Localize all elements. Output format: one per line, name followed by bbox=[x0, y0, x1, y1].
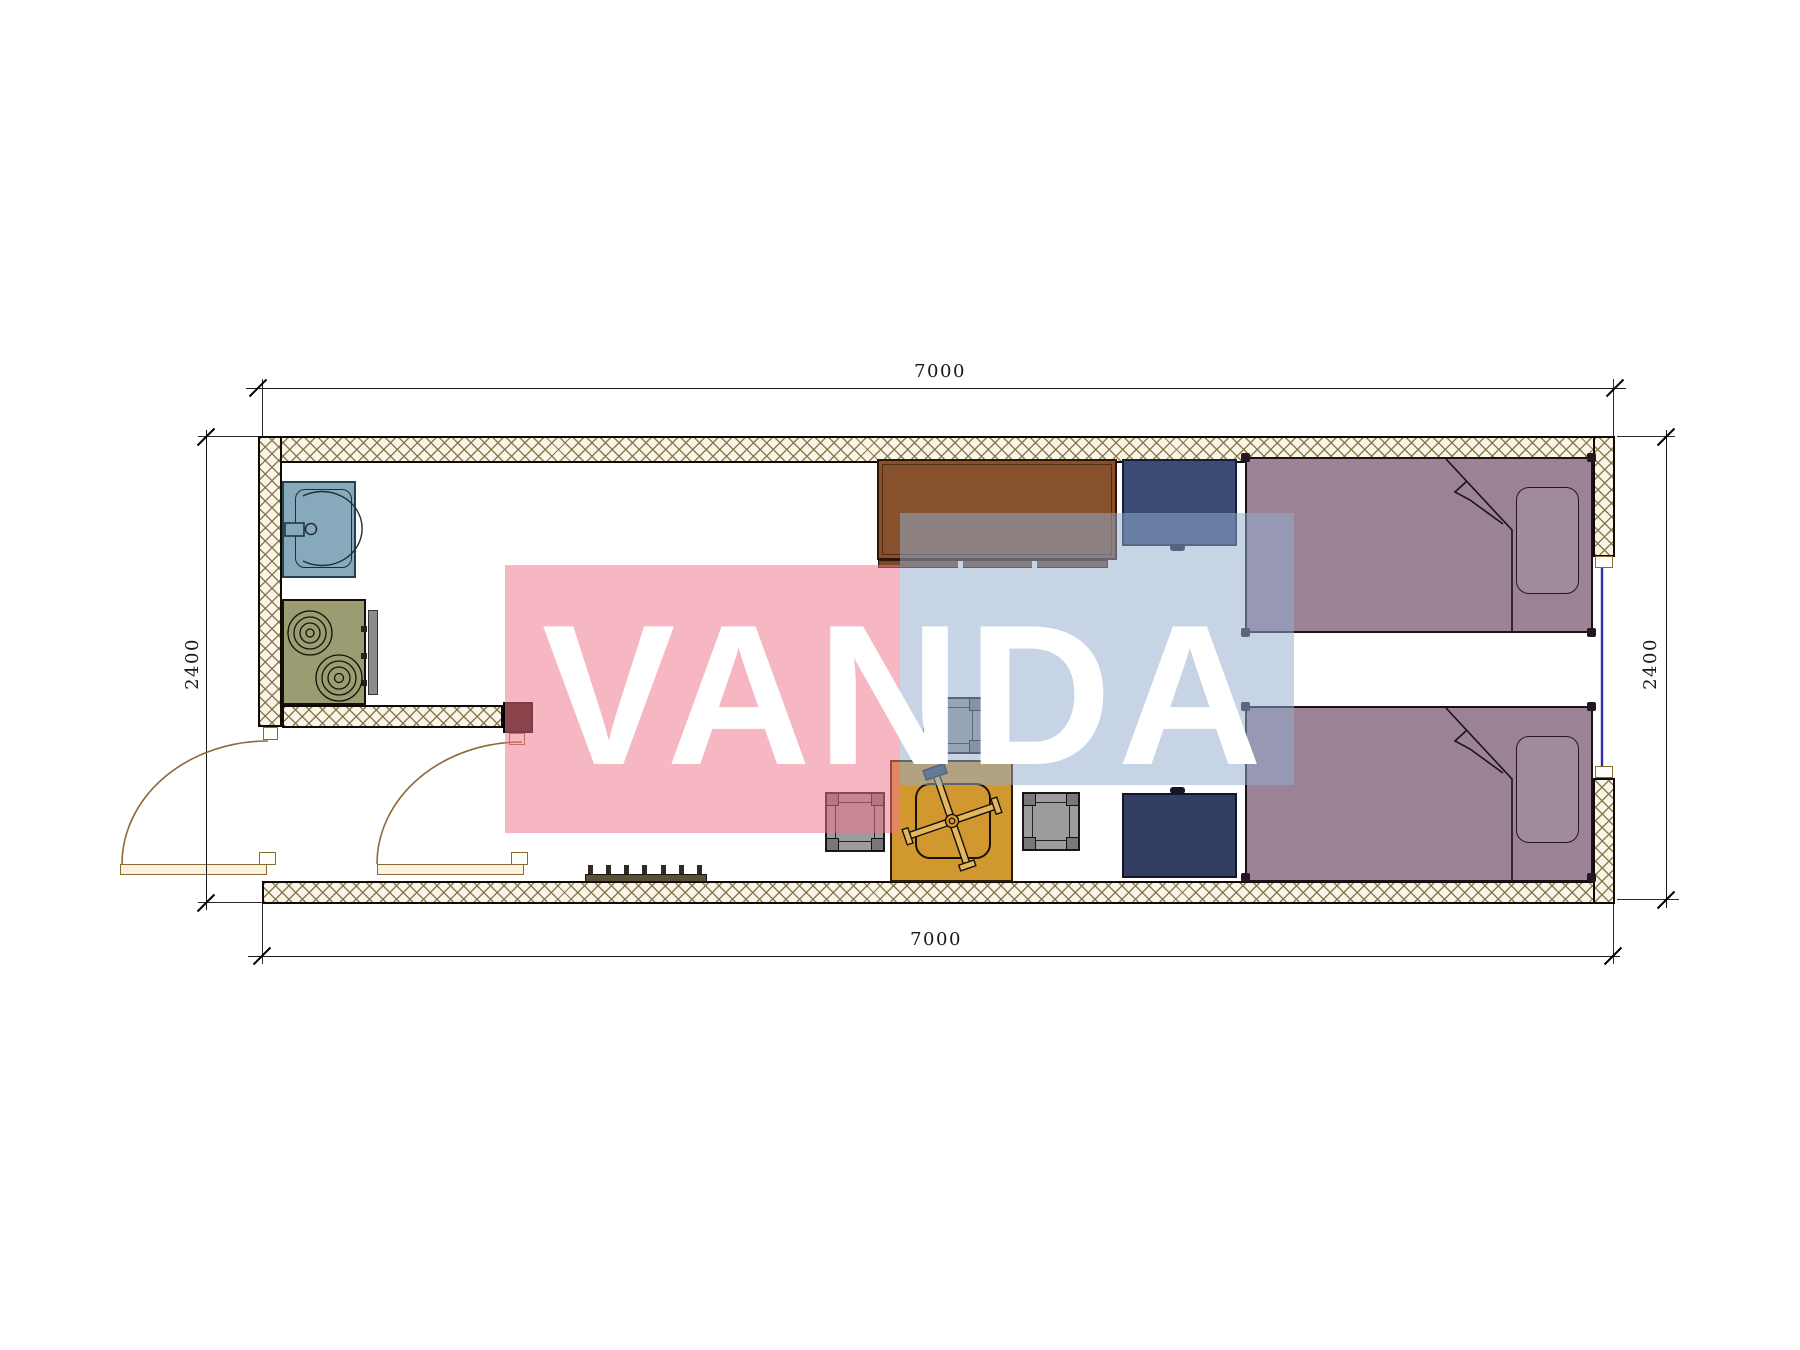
extension-line bbox=[1617, 899, 1679, 900]
bench-knob bbox=[606, 865, 611, 874]
wall-partition-kitchen bbox=[282, 705, 503, 728]
wall-right-upper bbox=[1593, 436, 1615, 557]
bed-post bbox=[1587, 702, 1596, 711]
stove-knob bbox=[361, 680, 367, 686]
wall-left bbox=[258, 436, 282, 727]
window-jamb bbox=[1595, 766, 1613, 778]
wall-right-lower bbox=[1593, 778, 1615, 904]
bed-post bbox=[1587, 628, 1596, 637]
bed-post bbox=[1241, 873, 1250, 882]
entry-bench bbox=[585, 874, 707, 882]
stool-leg bbox=[826, 838, 839, 851]
bench-knob bbox=[661, 865, 666, 874]
dimension-label-left: 2400 bbox=[183, 564, 203, 764]
bench-knob bbox=[679, 865, 684, 874]
stool-leg bbox=[871, 838, 884, 851]
door-jamb bbox=[263, 727, 278, 740]
wall-bottom bbox=[262, 881, 1615, 904]
stool-leg bbox=[1066, 837, 1079, 850]
bed-post bbox=[1241, 453, 1250, 462]
window-jamb bbox=[1595, 556, 1613, 568]
dimension-line-left bbox=[206, 430, 207, 910]
bed-post bbox=[1587, 453, 1596, 462]
floor-plan-canvas: 7000 7000 2400 2400 VANDA bbox=[0, 0, 1800, 1350]
bed-post bbox=[1587, 873, 1596, 882]
pillow bbox=[1516, 487, 1579, 594]
bench-knob bbox=[624, 865, 629, 874]
sink-basin bbox=[295, 489, 352, 568]
stove-knob bbox=[361, 653, 367, 659]
dimension-label-top: 7000 bbox=[840, 362, 1040, 382]
dimension-line-top bbox=[246, 388, 1626, 389]
stove-side-panel bbox=[368, 610, 378, 695]
dimension-line-bottom bbox=[248, 956, 1620, 957]
bench-knob bbox=[642, 865, 647, 874]
dimension-line-right bbox=[1666, 430, 1667, 908]
stove-knob bbox=[361, 626, 367, 632]
extension-line bbox=[262, 379, 263, 437]
pillow bbox=[1516, 736, 1579, 843]
bench-knob bbox=[588, 865, 593, 874]
dimension-label-bottom: 7000 bbox=[836, 930, 1036, 950]
stool-seat-outline bbox=[1032, 802, 1070, 841]
stool-leg bbox=[1023, 837, 1036, 850]
watermark-text: VANDA bbox=[490, 601, 1320, 791]
bench-knob bbox=[697, 865, 702, 874]
vestibule-door-leaf bbox=[377, 864, 524, 875]
entry-door-leaf bbox=[120, 864, 267, 875]
stove-cooktop bbox=[282, 599, 366, 705]
dimension-label-right: 2400 bbox=[1641, 564, 1661, 764]
